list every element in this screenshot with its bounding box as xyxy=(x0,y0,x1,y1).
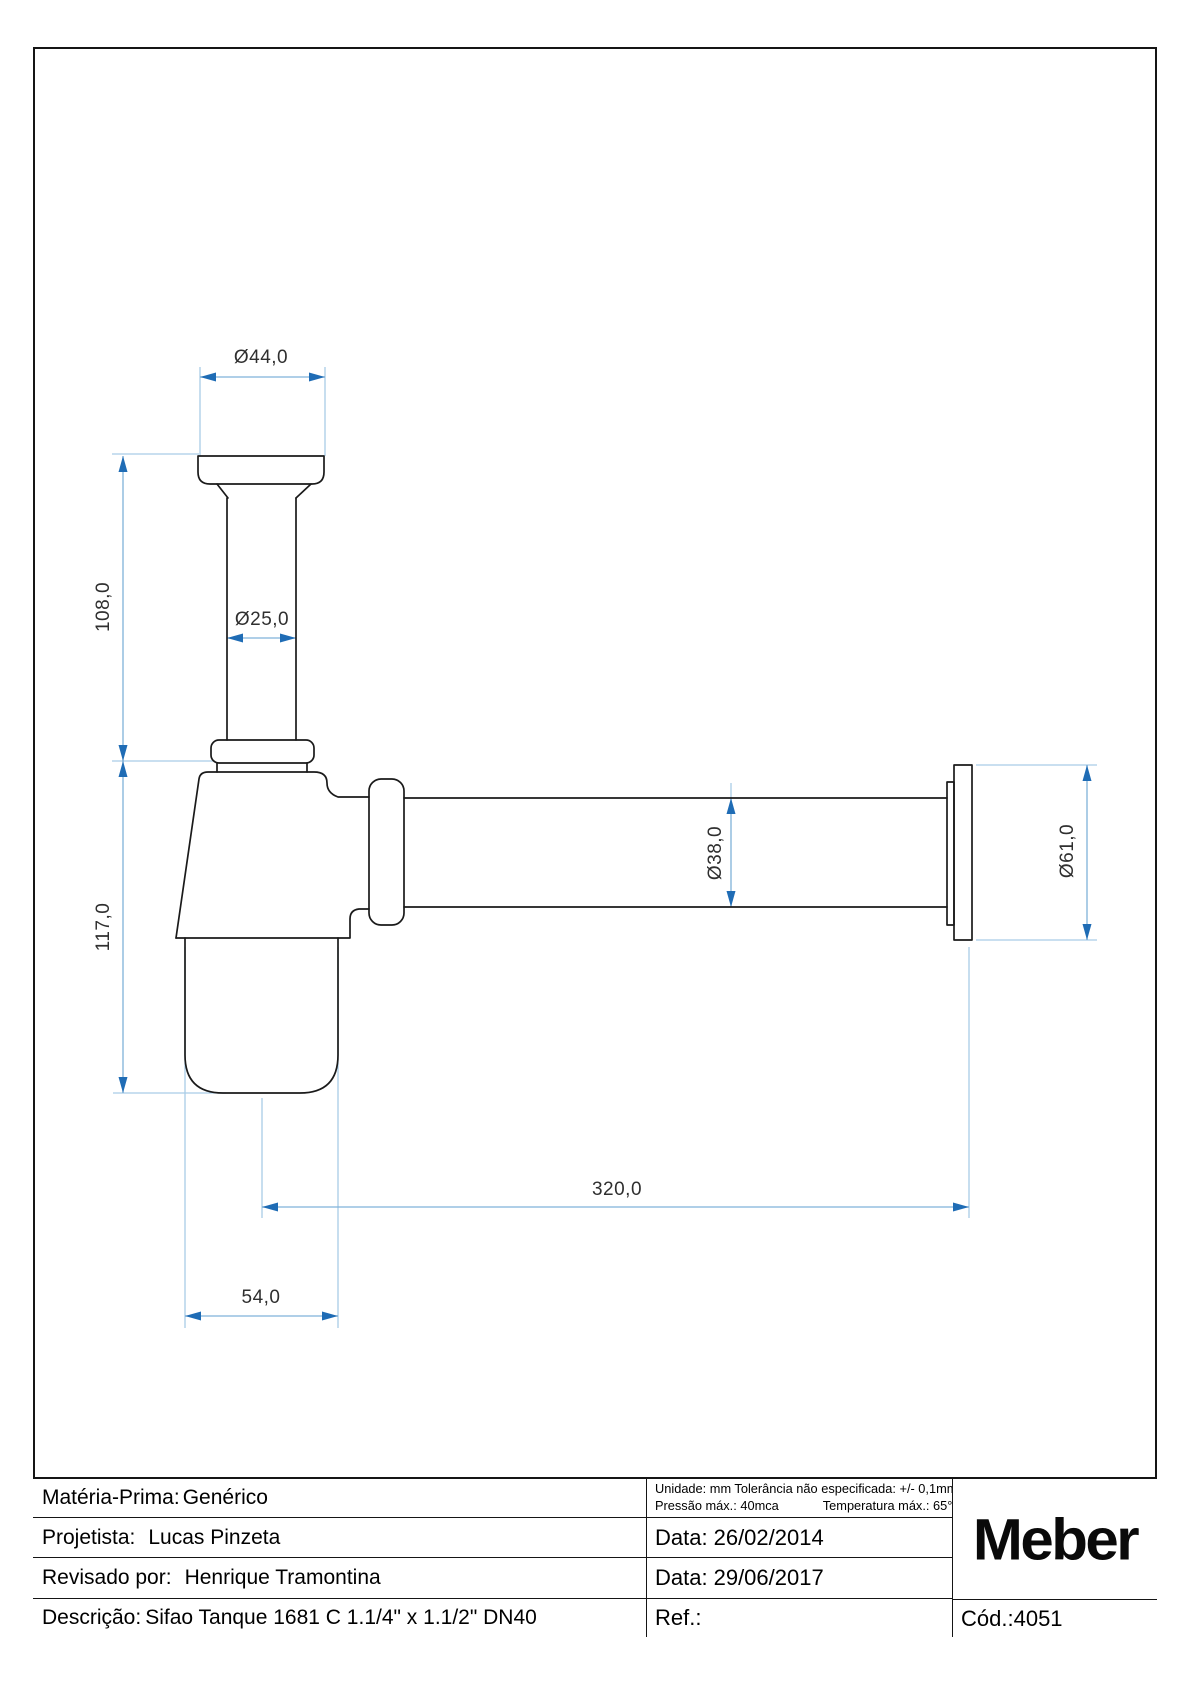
dim-label-inlet-tube-diameter: Ø25,0 xyxy=(235,609,289,631)
meber-logo: Meber xyxy=(973,1505,1137,1573)
dim-label-outlet-pipe-diameter: Ø38,0 xyxy=(705,826,727,880)
trap-cup xyxy=(185,938,338,1093)
code-value: 4051 xyxy=(1014,1606,1063,1632)
dim-label-cup-diameter: 54,0 xyxy=(242,1287,281,1309)
slip-nut xyxy=(211,740,314,763)
tailpiece-flange xyxy=(198,456,324,484)
ref-label: Ref.: xyxy=(647,1605,701,1631)
title-block-row-revisado: Revisado por: Henrique Tramontina xyxy=(33,1558,646,1599)
dim-label-wall-flange-diameter: Ø61,0 xyxy=(1057,824,1079,878)
materia-prima-value: Genérico xyxy=(183,1486,268,1510)
date-created-value: 26/02/2014 xyxy=(708,1525,824,1551)
brand-cell: Meber xyxy=(952,1479,1157,1599)
dim-label-body-height: 117,0 xyxy=(93,903,115,952)
revisado-label: Revisado por: xyxy=(33,1566,172,1590)
technical-drawing xyxy=(0,0,1190,1684)
outlet-nut xyxy=(369,779,404,925)
specs-pressure: Pressão máx.: 40mca xyxy=(655,1498,779,1513)
title-block: Matéria-Prima: Genérico Projetista: Luca… xyxy=(33,1477,1157,1635)
title-block-row-descricao: Descrição: Sifao Tanque 1681 C 1.1/4" x … xyxy=(33,1599,646,1637)
specs-line-pressure-temp: Pressão máx.: 40mcaTemperatura máx.: 65°… xyxy=(647,1498,962,1515)
descricao-label: Descrição: xyxy=(33,1606,141,1630)
title-block-row-code: Cód.: 4051 xyxy=(952,1599,1157,1637)
materia-prima-label: Matéria-Prima: xyxy=(33,1486,180,1510)
dimension-lines xyxy=(123,377,1087,1316)
specs-temperature: Temperatura máx.: 65°C xyxy=(823,1498,962,1513)
tailpiece-taper xyxy=(217,484,228,498)
date-revised-value: 29/06/2017 xyxy=(708,1565,824,1591)
title-block-row-materia-prima: Matéria-Prima: Genérico xyxy=(33,1479,646,1518)
specs-line-units: Unidade: mm Tolerância não especificada:… xyxy=(647,1481,957,1498)
tailpiece-taper xyxy=(296,484,311,498)
specs-box: Unidade: mm Tolerância não especificada:… xyxy=(646,1479,952,1518)
title-block-row-ref: Ref.: xyxy=(646,1599,952,1637)
date-created-label: Data: xyxy=(647,1525,708,1551)
wall-flange-cap xyxy=(954,765,972,940)
trap-body-lower xyxy=(176,909,369,938)
dim-label-top-flange-diameter: Ø44,0 xyxy=(234,347,288,369)
date-revised-label: Data: xyxy=(647,1565,708,1591)
projetista-label: Projetista: xyxy=(33,1526,135,1550)
descricao-value: Sifao Tanque 1681 C 1.1/4" x 1.1/2" DN40 xyxy=(145,1606,537,1630)
title-block-row-date-created: Data: 26/02/2014 xyxy=(646,1518,952,1558)
dim-label-outlet-length: 320,0 xyxy=(592,1179,642,1201)
title-block-row-date-revised: Data: 29/06/2017 xyxy=(646,1558,952,1599)
wall-flange-plate xyxy=(947,782,954,925)
projetista-value: Lucas Pinzeta xyxy=(148,1526,280,1550)
title-block-row-projetista: Projetista: Lucas Pinzeta xyxy=(33,1518,646,1558)
dim-label-inlet-tube-height: 108,0 xyxy=(93,582,115,632)
revisado-value: Henrique Tramontina xyxy=(185,1566,381,1590)
code-label: Cód.: xyxy=(953,1606,1014,1632)
trap-body xyxy=(176,772,369,938)
